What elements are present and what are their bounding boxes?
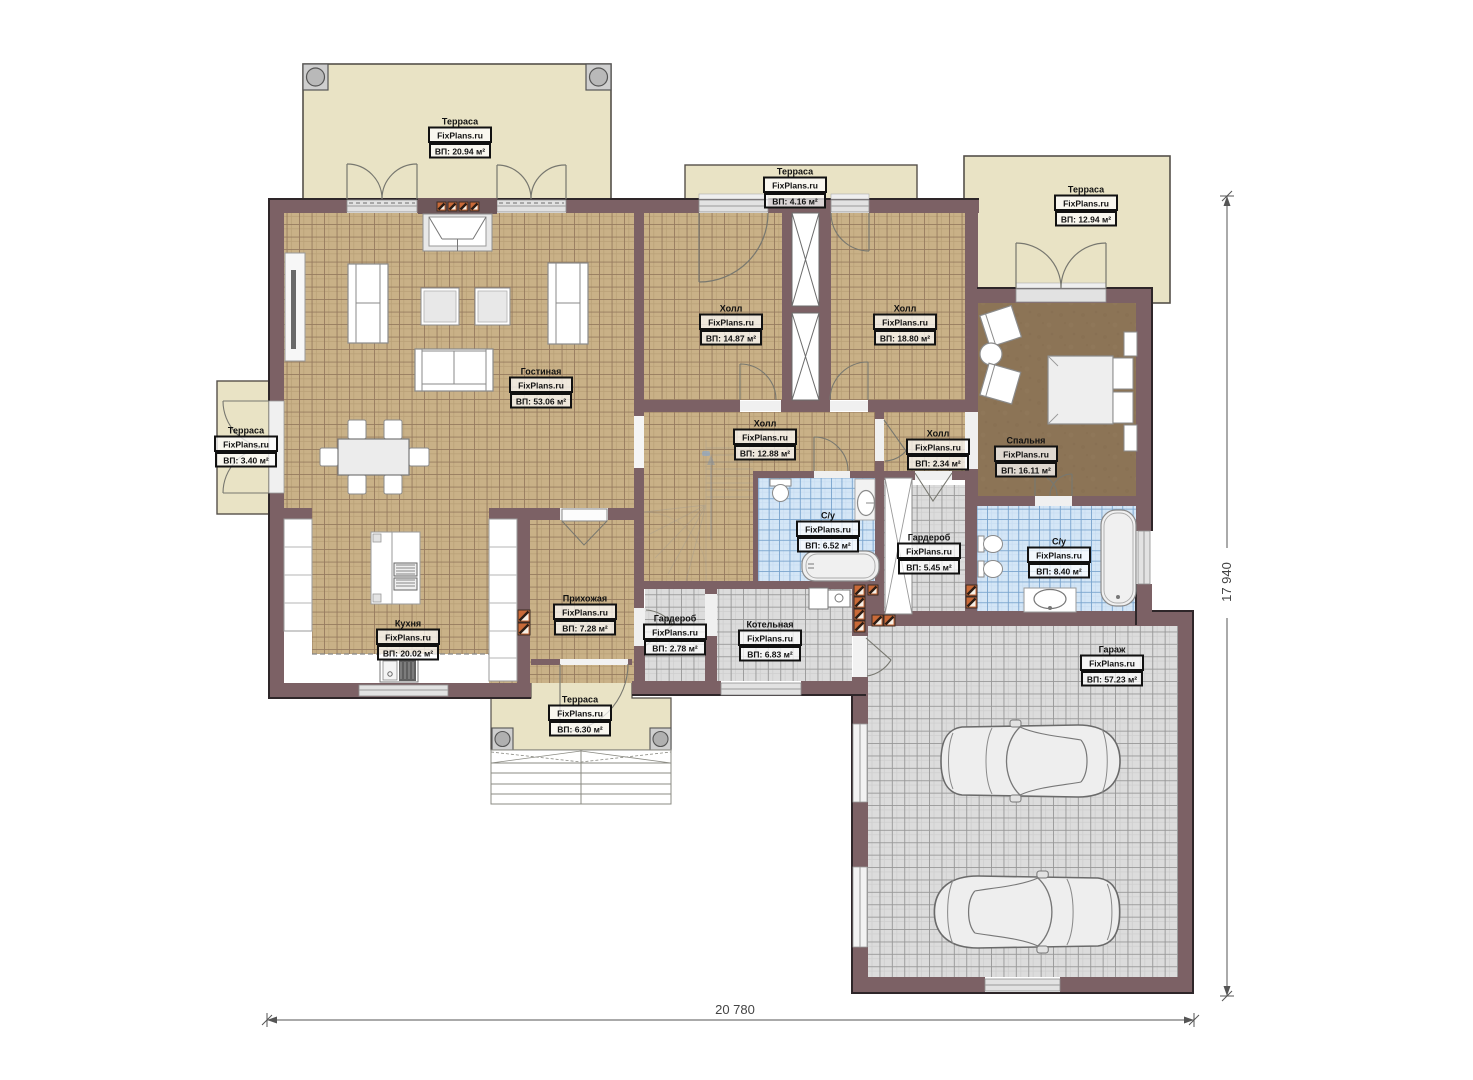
svg-text:ВП: 57.23 м²: ВП: 57.23 м² [1087,675,1137,685]
svg-text:Терраса: Терраса [228,426,265,436]
svg-text:Кухня: Кухня [395,619,421,629]
svg-text:FixPlans.ru: FixPlans.ru [437,131,483,141]
svg-text:FixPlans.ru: FixPlans.ru [557,709,603,719]
svg-text:Терраса: Терраса [1068,185,1105,195]
svg-text:Терраса: Терраса [442,117,479,127]
svg-text:Терраса: Терраса [777,167,814,177]
svg-text:ВП: 2.34 м²: ВП: 2.34 м² [915,459,961,469]
svg-text:ВП: 16.11 м²: ВП: 16.11 м² [1001,466,1051,476]
svg-text:20 780: 20 780 [715,1002,755,1017]
svg-text:ВП: 8.40 м²: ВП: 8.40 м² [1036,567,1082,577]
svg-text:С/у: С/у [1052,537,1066,547]
svg-text:ВП: 6.52 м²: ВП: 6.52 м² [805,541,851,551]
svg-text:FixPlans.ru: FixPlans.ru [747,634,793,644]
svg-text:Спальня: Спальня [1007,436,1046,446]
svg-text:ВП: 20.02 м²: ВП: 20.02 м² [383,649,433,659]
svg-text:ВП: 12.94 м²: ВП: 12.94 м² [1061,215,1111,225]
svg-text:FixPlans.ru: FixPlans.ru [652,628,698,638]
svg-text:Холл: Холл [927,429,950,439]
svg-text:Котельная: Котельная [746,620,793,630]
svg-text:17 940: 17 940 [1219,562,1234,602]
svg-text:FixPlans.ru: FixPlans.ru [742,433,788,443]
svg-text:FixPlans.ru: FixPlans.ru [708,318,754,328]
svg-text:ВП: 4.16 м²: ВП: 4.16 м² [772,197,818,207]
svg-text:Гардероб: Гардероб [908,533,951,543]
svg-text:ВП: 20.94 м²: ВП: 20.94 м² [435,147,485,157]
svg-text:Холл: Холл [720,304,743,314]
svg-text:FixPlans.ru: FixPlans.ru [223,440,269,450]
svg-text:FixPlans.ru: FixPlans.ru [518,381,564,391]
svg-text:FixPlans.ru: FixPlans.ru [1063,199,1109,209]
svg-text:ВП: 2.78 м²: ВП: 2.78 м² [652,644,698,654]
svg-text:Прихожая: Прихожая [563,594,607,604]
svg-text:ВП: 12.88 м²: ВП: 12.88 м² [740,449,790,459]
svg-text:FixPlans.ru: FixPlans.ru [882,318,928,328]
svg-text:ВП: 14.87 м²: ВП: 14.87 м² [706,334,756,344]
svg-text:FixPlans.ru: FixPlans.ru [385,633,431,643]
svg-text:ВП: 6.30 м²: ВП: 6.30 м² [557,725,603,735]
svg-text:ВП: 3.40 м²: ВП: 3.40 м² [223,456,269,466]
svg-text:FixPlans.ru: FixPlans.ru [906,547,952,557]
svg-text:ВП: 18.80 м²: ВП: 18.80 м² [880,334,930,344]
svg-text:FixPlans.ru: FixPlans.ru [1036,551,1082,561]
svg-text:FixPlans.ru: FixPlans.ru [562,608,608,618]
svg-text:ВП: 53.06 м²: ВП: 53.06 м² [516,397,566,407]
svg-text:Гараж: Гараж [1099,645,1126,655]
svg-text:ВП: 6.83 м²: ВП: 6.83 м² [747,650,793,660]
svg-text:FixPlans.ru: FixPlans.ru [1003,450,1049,460]
svg-text:Терраса: Терраса [562,695,599,705]
svg-text:Гардероб: Гардероб [654,614,697,624]
svg-text:Холл: Холл [754,419,777,429]
svg-text:Гостиная: Гостиная [521,367,562,377]
svg-text:FixPlans.ru: FixPlans.ru [915,443,961,453]
svg-text:Холл: Холл [894,304,917,314]
svg-text:FixPlans.ru: FixPlans.ru [805,525,851,535]
svg-text:С/у: С/у [821,511,835,521]
svg-text:ВП: 5.45 м²: ВП: 5.45 м² [906,563,952,573]
svg-text:ВП: 7.28 м²: ВП: 7.28 м² [562,624,608,634]
svg-text:FixPlans.ru: FixPlans.ru [1089,659,1135,669]
svg-text:FixPlans.ru: FixPlans.ru [772,181,818,191]
